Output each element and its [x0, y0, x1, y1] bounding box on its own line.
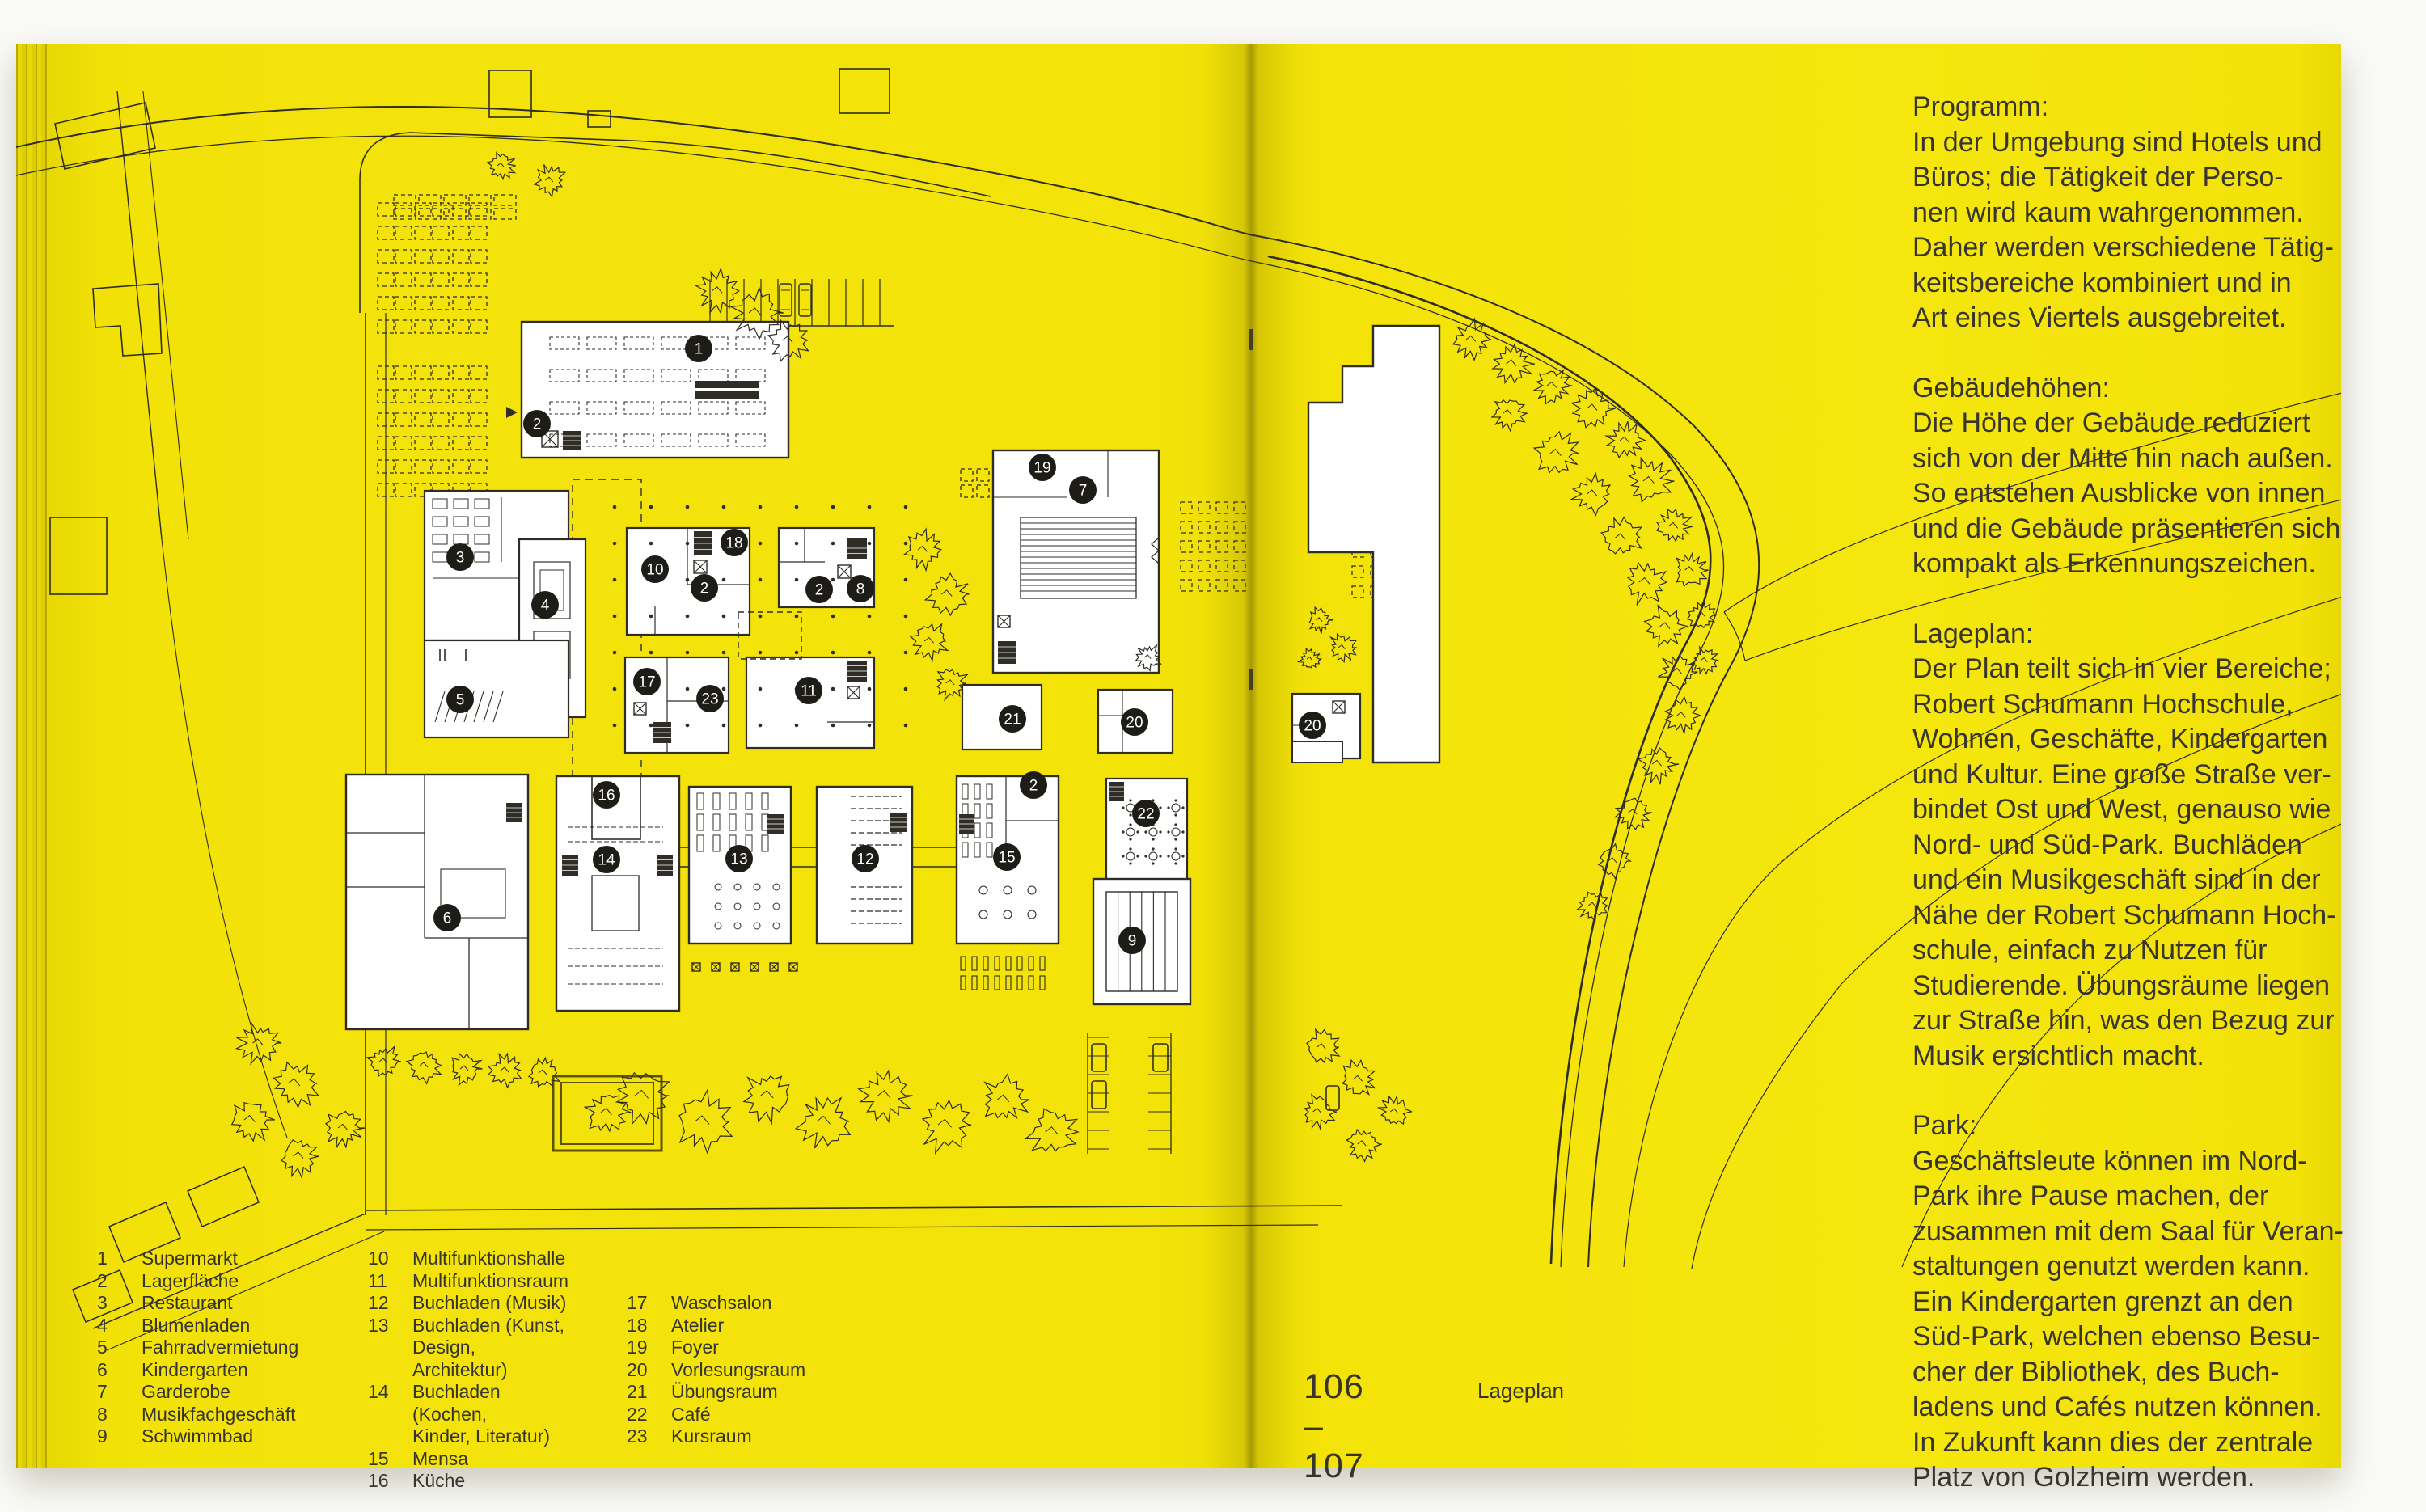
- svg-text:11: 11: [801, 683, 817, 700]
- svg-text:12: 12: [856, 851, 873, 868]
- legend-column: 10Multifunktionshalle11Multifunktionsrau…: [368, 1248, 568, 1493]
- buildings: [346, 322, 1439, 1029]
- map-marker-15: 15: [993, 843, 1021, 871]
- legend-item-number: 23: [627, 1425, 671, 1448]
- map-marker-1: 1: [685, 335, 712, 362]
- map-marker-3: 3: [446, 543, 474, 571]
- legend-item-label: Vorlesungsraum: [671, 1359, 805, 1382]
- map-marker-20: 20: [1121, 708, 1148, 736]
- text-paragraph-gebaeudehoehen: Gebäudehöhen: Die Höhe der Gebäude reduz…: [1912, 371, 2345, 582]
- svg-text:4: 4: [541, 598, 550, 615]
- legend-item: 6Kindergarten: [97, 1359, 298, 1382]
- map-marker-5: 5: [446, 686, 474, 713]
- legend-item-number: 12: [368, 1292, 412, 1315]
- legend-item-label: Küche: [412, 1470, 568, 1493]
- legend-item-label: Restaurant: [142, 1292, 298, 1315]
- legend-item-number: 20: [627, 1359, 671, 1382]
- svg-text:13: 13: [730, 851, 747, 868]
- svg-text:19: 19: [1033, 460, 1050, 477]
- svg-text:9: 9: [1128, 933, 1137, 950]
- legend-item-number: 18: [627, 1315, 671, 1337]
- svg-text:17: 17: [638, 674, 655, 691]
- legend-item: 20Vorlesungsraum: [627, 1359, 805, 1382]
- svg-text:18: 18: [725, 535, 742, 552]
- svg-text:22: 22: [1137, 806, 1154, 823]
- map-marker-11: 11: [795, 677, 822, 704]
- legend-column: 17Waschsalon18Atelier19Foyer20Vorlesungs…: [627, 1248, 805, 1448]
- svg-text:8: 8: [856, 581, 865, 598]
- svg-text:10: 10: [646, 562, 663, 579]
- legend-item-label: Supermarkt: [142, 1248, 298, 1270]
- legend-item-number: 4: [97, 1315, 142, 1337]
- svg-text:23: 23: [701, 691, 718, 708]
- legend-item-label: Waschsalon: [671, 1292, 805, 1315]
- svg-text:2: 2: [533, 416, 542, 433]
- svg-text:1: 1: [695, 341, 704, 358]
- legend-item-label: Multifunktionshalle: [412, 1248, 568, 1270]
- svg-text:15: 15: [998, 850, 1015, 867]
- map-marker-2: 2: [805, 576, 833, 603]
- svg-text:2: 2: [1029, 778, 1038, 795]
- legend-item-label: Übungsraum: [671, 1381, 805, 1404]
- map-marker-21: 21: [999, 705, 1026, 733]
- legend-item-number: 19: [627, 1337, 671, 1359]
- svg-text:20: 20: [1304, 718, 1321, 735]
- legend-item-number: 10: [368, 1248, 412, 1270]
- legend-item-number: 8: [97, 1404, 142, 1426]
- book-spread: 1234567891011121314151617181920202122232…: [16, 44, 2341, 1468]
- map-marker-4: 4: [531, 591, 559, 619]
- legend-item-label: Buchladen (Kochen, Kinder, Literatur): [412, 1381, 568, 1448]
- legend-column: 1Supermarkt2Lagerfläche3Restaurant4Blume…: [97, 1248, 298, 1448]
- legend-item-number: 6: [97, 1359, 142, 1382]
- svg-text:16: 16: [598, 788, 615, 805]
- legend-item-label: Buchladen (Musik): [412, 1292, 568, 1315]
- svg-text:14: 14: [598, 852, 615, 869]
- map-marker-7: 7: [1069, 476, 1097, 504]
- legend-item: 11Multifunktionsraum: [368, 1270, 568, 1293]
- legend-item-number: 11: [368, 1270, 412, 1293]
- legend-item-number: 17: [627, 1292, 671, 1315]
- legend-item: 23Kursraum: [627, 1425, 805, 1448]
- svg-text:21: 21: [1004, 712, 1021, 729]
- legend-item: 22Café: [627, 1404, 805, 1426]
- legend-item: 21Übungsraum: [627, 1381, 805, 1404]
- legend-item-label: Musikfachgeschäft: [142, 1404, 298, 1426]
- legend-item-label: Kindergarten: [142, 1359, 298, 1382]
- legend-item-label: Kursraum: [671, 1425, 805, 1448]
- legend-item-label: Lagerfläche: [142, 1270, 298, 1293]
- svg-text:2: 2: [815, 582, 824, 599]
- legend-item-label: Buchladen (Kunst, Design, Architektur): [412, 1315, 568, 1382]
- map-marker-2: 2: [691, 574, 718, 602]
- map-marker-6: 6: [433, 904, 461, 931]
- text-paragraph-park: Park: Geschäftsleute können im Nord- Par…: [1912, 1109, 2345, 1496]
- legend-item: 8Musikfachgeschäft: [97, 1404, 298, 1426]
- legend-item-label: Foyer: [671, 1337, 805, 1359]
- map-marker-16: 16: [593, 781, 620, 809]
- legend-item: 18Atelier: [627, 1315, 805, 1337]
- legend-item: 2Lagerfläche: [97, 1270, 298, 1293]
- legend-item: 16Küche: [368, 1470, 568, 1493]
- legend-item-number: 9: [97, 1425, 142, 1448]
- legend-item: 14Buchladen (Kochen, Kinder, Literatur): [368, 1381, 568, 1448]
- legend-item-label: Schwimmbad: [142, 1425, 298, 1448]
- legend-item-number: 2: [97, 1270, 142, 1293]
- legend-item-number: 13: [368, 1315, 412, 1382]
- svg-text:5: 5: [456, 692, 465, 709]
- legend-item: 3Restaurant: [97, 1292, 298, 1315]
- svg-text:3: 3: [456, 550, 465, 567]
- map-marker-10: 10: [641, 555, 669, 583]
- page-numbers: 106 – 107: [1304, 1367, 1364, 1486]
- legend-item: 17Waschsalon: [627, 1292, 805, 1315]
- legend-item: 7Garderobe: [97, 1381, 298, 1404]
- map-marker-20: 20: [1299, 712, 1326, 739]
- legend-item-label: Café: [671, 1404, 805, 1426]
- map-marker-9: 9: [1118, 927, 1146, 954]
- text-paragraph-programm: Programm: In der Umgebung sind Hotels un…: [1912, 90, 2345, 336]
- legend-item-number: 7: [97, 1381, 142, 1404]
- legend-item-number: 15: [368, 1448, 412, 1471]
- legend-item: 19Foyer: [627, 1337, 805, 1359]
- legend-item-label: Garderobe: [142, 1381, 298, 1404]
- legend-item-number: 16: [368, 1470, 412, 1493]
- legend-item: 10Multifunktionshalle: [368, 1248, 568, 1270]
- map-marker-14: 14: [593, 846, 620, 873]
- svg-text:7: 7: [1079, 483, 1088, 500]
- section-label: Lageplan: [1477, 1379, 1564, 1404]
- text-column: Programm: In der Umgebung sind Hotels un…: [1912, 90, 2345, 1512]
- map-marker-12: 12: [852, 845, 879, 872]
- legend-item-label: Fahrradvermietung: [142, 1337, 298, 1359]
- legend-item: 1Supermarkt: [97, 1248, 298, 1270]
- legend-item: 15Mensa: [368, 1448, 568, 1471]
- legend-item: 5Fahrradvermietung: [97, 1337, 298, 1359]
- map-marker-18: 18: [721, 529, 748, 556]
- map-marker-23: 23: [696, 685, 724, 712]
- svg-text:6: 6: [443, 910, 452, 927]
- legend-item: 12Buchladen (Musik): [368, 1292, 568, 1315]
- map-marker-8: 8: [847, 575, 874, 602]
- svg-text:20: 20: [1126, 715, 1143, 732]
- legend-item-number: 5: [97, 1337, 142, 1359]
- legend-item-number: 1: [97, 1248, 142, 1270]
- legend-item: 4Blumenladen: [97, 1315, 298, 1337]
- text-paragraph-lageplan: Lageplan: Der Plan teilt sich in vier Be…: [1912, 617, 2345, 1075]
- legend-item-label: Multifunktionsraum: [412, 1270, 568, 1293]
- map-marker-19: 19: [1029, 454, 1056, 481]
- legend-item-number: 21: [627, 1381, 671, 1404]
- legend-item-label: Atelier: [671, 1315, 805, 1337]
- legend-item-label: Mensa: [412, 1448, 568, 1471]
- svg-text:2: 2: [700, 581, 709, 598]
- legend-item-number: 22: [627, 1404, 671, 1426]
- legend-item-number: 14: [368, 1381, 412, 1448]
- photo-backdrop: 1234567891011121314151617181920202122232…: [0, 0, 2426, 1512]
- legend-item: 13Buchladen (Kunst, Design, Architektur): [368, 1315, 568, 1382]
- map-marker-17: 17: [633, 668, 661, 695]
- legend-item-label: Blumenladen: [142, 1315, 298, 1337]
- legend-item-number: 3: [97, 1292, 142, 1315]
- map-marker-13: 13: [725, 845, 753, 872]
- map-marker-2: 2: [523, 410, 551, 437]
- legend-item: 9Schwimmbad: [97, 1425, 298, 1448]
- map-marker-22: 22: [1132, 800, 1160, 827]
- map-marker-2: 2: [1020, 771, 1047, 799]
